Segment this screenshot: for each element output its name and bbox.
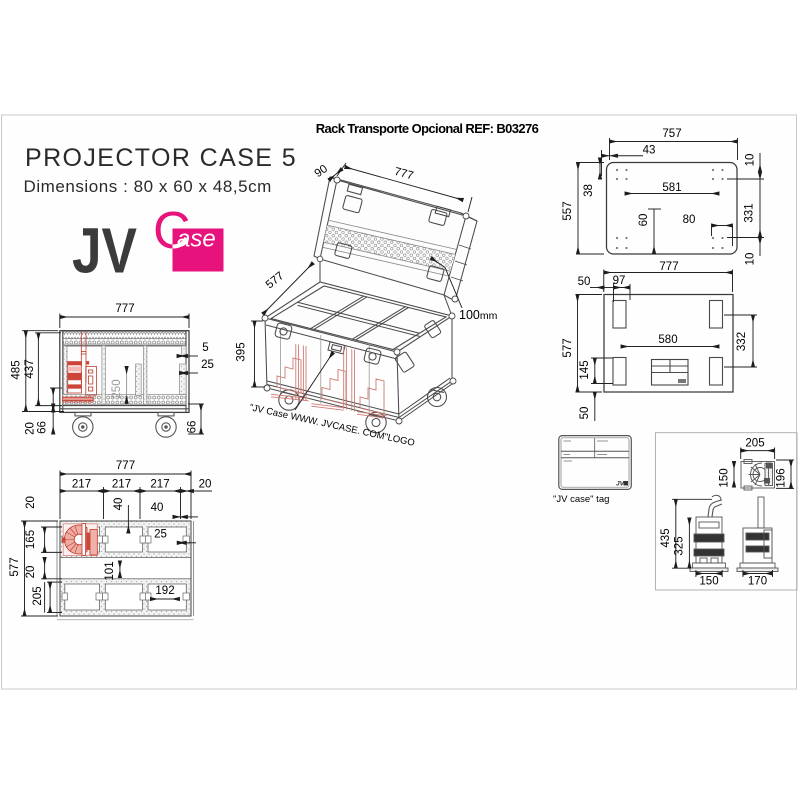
svg-text:205: 205 (32, 586, 44, 605)
svg-text:20: 20 (199, 479, 212, 491)
svg-text:757: 757 (662, 128, 681, 140)
svg-text:43: 43 (643, 145, 656, 157)
svg-text:40: 40 (151, 502, 164, 514)
svg-text:"JV case" tag: "JV case" tag (553, 494, 609, 505)
svg-text:100mm: 100mm (459, 308, 498, 322)
svg-text:5: 5 (202, 342, 208, 354)
svg-text:777: 777 (659, 261, 678, 273)
svg-text:217: 217 (72, 479, 91, 491)
svg-text:217: 217 (112, 479, 131, 491)
svg-text:ase: ase (177, 226, 216, 253)
svg-text:40: 40 (113, 498, 125, 511)
svg-text:332: 332 (736, 332, 748, 351)
svg-text:205: 205 (745, 438, 764, 450)
svg-text:325: 325 (674, 536, 686, 555)
svg-text:JV: JV (72, 215, 137, 287)
svg-text:485: 485 (11, 360, 23, 379)
svg-text:50: 50 (578, 276, 591, 288)
svg-text:PROJECTOR CASE 5: PROJECTOR CASE 5 (25, 144, 297, 172)
svg-text:395: 395 (236, 342, 248, 361)
svg-text:435: 435 (660, 528, 672, 547)
svg-text:217: 217 (150, 479, 169, 491)
svg-text:25: 25 (154, 529, 167, 541)
svg-text:250: 250 (111, 379, 123, 398)
svg-text:JV: JV (616, 481, 625, 488)
svg-text:66: 66 (37, 421, 49, 434)
svg-text:150: 150 (719, 468, 731, 487)
svg-text:80: 80 (683, 214, 696, 226)
svg-text:50: 50 (579, 407, 591, 420)
svg-text:10: 10 (745, 253, 757, 266)
svg-text:150: 150 (699, 576, 718, 588)
svg-text:165: 165 (25, 530, 37, 549)
svg-text:581: 581 (662, 182, 681, 194)
svg-text:60: 60 (638, 214, 650, 227)
svg-text:331: 331 (744, 203, 756, 222)
svg-text:97: 97 (613, 275, 626, 287)
svg-text:38: 38 (583, 184, 595, 197)
svg-text:170: 170 (748, 576, 767, 588)
svg-text:66: 66 (187, 421, 199, 434)
svg-text:Dimensions : 80 x 60 x 48,5cm: Dimensions : 80 x 60 x 48,5cm (24, 177, 272, 196)
svg-text:20: 20 (25, 422, 37, 435)
svg-text:20: 20 (25, 496, 37, 509)
svg-text:145: 145 (579, 360, 591, 379)
svg-text:25: 25 (201, 359, 214, 371)
svg-text:577: 577 (9, 557, 21, 576)
svg-text:437: 437 (24, 359, 36, 378)
svg-text:580: 580 (658, 334, 677, 346)
svg-text:557: 557 (562, 201, 574, 220)
svg-text:777: 777 (115, 303, 134, 315)
svg-text:192: 192 (155, 585, 174, 597)
svg-text:10: 10 (745, 154, 757, 167)
svg-text:20: 20 (25, 566, 37, 579)
svg-text:101: 101 (104, 561, 116, 580)
svg-text:577: 577 (562, 338, 574, 357)
svg-text:Rack Transporte Opcional REF:: Rack Transporte Opcional REF: B03276 (316, 121, 539, 136)
svg-text:196: 196 (776, 468, 788, 487)
svg-text:777: 777 (116, 460, 135, 472)
